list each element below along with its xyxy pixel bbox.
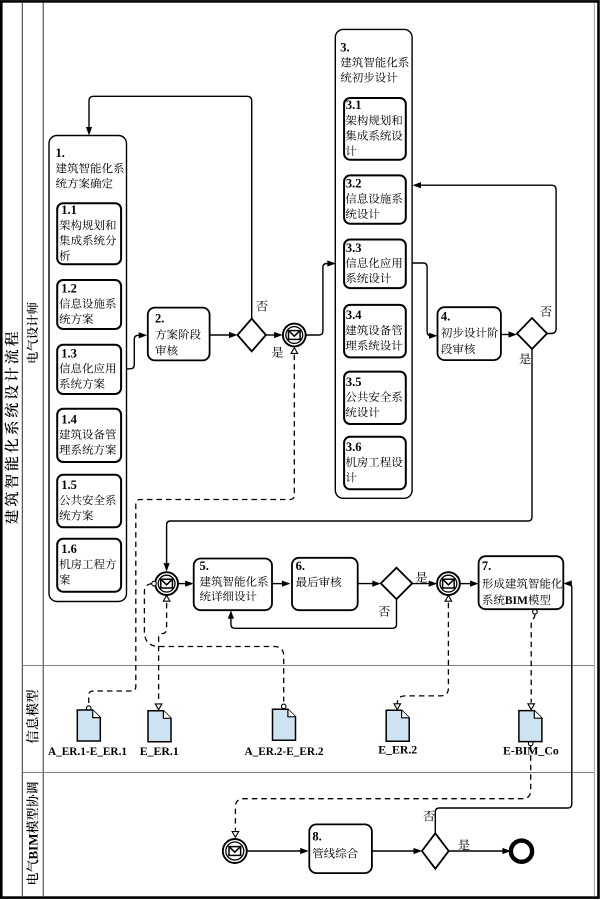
svg-text:8.: 8.: [312, 830, 321, 844]
svg-text:3.5: 3.5: [346, 375, 362, 389]
svg-text:3.1: 3.1: [346, 98, 362, 112]
svg-text:1.6: 1.6: [61, 542, 77, 556]
svg-text:4.: 4.: [441, 310, 450, 324]
svg-text:E-BIM_Co: E-BIM_Co: [503, 743, 559, 757]
svg-text:1.4: 1.4: [61, 412, 77, 426]
svg-text:7.: 7.: [482, 559, 491, 573]
svg-text:3.6: 3.6: [346, 440, 362, 454]
svg-text:3.3: 3.3: [346, 241, 362, 255]
svg-text:E_ER.2: E_ER.2: [378, 743, 417, 757]
svg-text:3.2: 3.2: [346, 177, 362, 191]
svg-text:1.: 1.: [56, 146, 65, 160]
svg-text:E_ER.1: E_ER.1: [140, 744, 179, 758]
svg-text:3.: 3.: [340, 40, 349, 54]
svg-text:3.4: 3.4: [346, 308, 362, 322]
svg-text:6.: 6.: [296, 559, 305, 573]
svg-text:A_ER.2-E_ER.2: A_ER.2-E_ER.2: [244, 746, 323, 758]
svg-text:1.2: 1.2: [61, 281, 77, 295]
svg-text:BIM: BIM: [25, 834, 40, 860]
svg-text:1.1: 1.1: [61, 203, 77, 217]
svg-text:2.: 2.: [155, 311, 164, 325]
svg-text:1.5: 1.5: [61, 478, 77, 492]
svg-text:5.: 5.: [200, 559, 209, 573]
svg-text:1.3: 1.3: [61, 346, 77, 360]
svg-text:A_ER.1-E_ER.1: A_ER.1-E_ER.1: [48, 746, 127, 758]
svg-text:BIM: BIM: [505, 595, 528, 607]
